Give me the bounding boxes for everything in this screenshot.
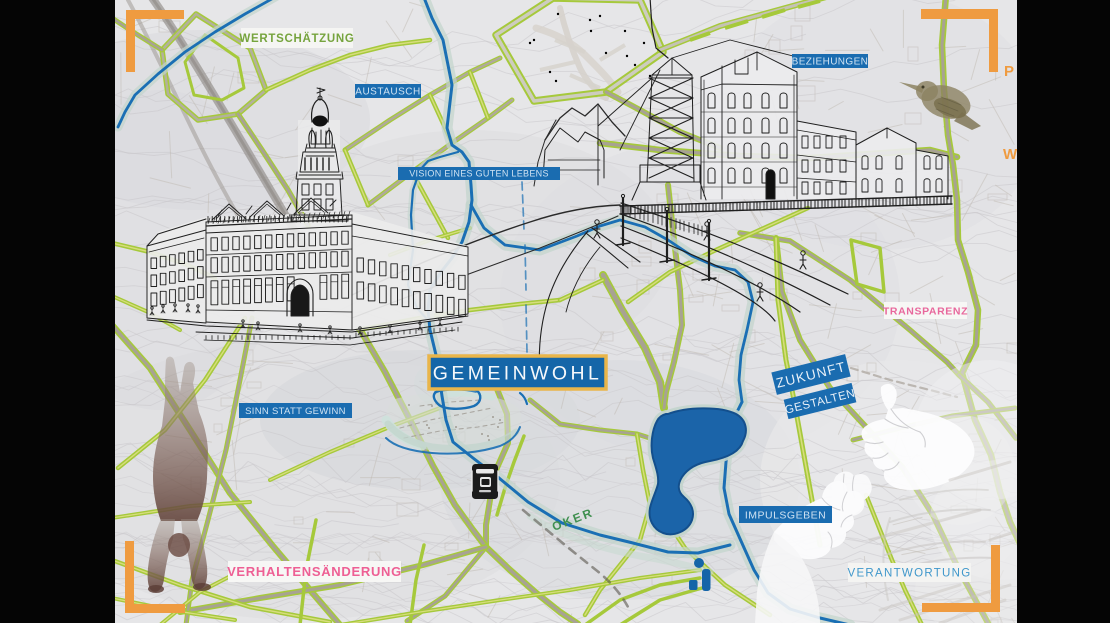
- svg-text:SINN STATT GEWINN: SINN STATT GEWINN: [245, 406, 346, 417]
- svg-text:GEMEINWOHL: GEMEINWOHL: [433, 363, 602, 385]
- svg-text:VERHALTENSÄNDERUNG: VERHALTENSÄNDERUNG: [227, 564, 402, 579]
- svg-text:IMPULSGEBEN: IMPULSGEBEN: [745, 509, 826, 521]
- svg-text:WERTSCHÄTZUNG: WERTSCHÄTZUNG: [239, 32, 354, 45]
- svg-text:W: W: [1003, 146, 1018, 163]
- svg-text:VISION EINES GUTEN LEBENS: VISION EINES GUTEN LEBENS: [409, 169, 549, 179]
- svg-text:TRANSPARENZ: TRANSPARENZ: [883, 305, 968, 317]
- svg-text:P: P: [1004, 63, 1014, 80]
- svg-text:AUSTAUSCH: AUSTAUSCH: [355, 87, 420, 98]
- svg-text:BEZIEHUNGEN: BEZIEHUNGEN: [792, 57, 869, 68]
- svg-text:VERANTWORTUNG: VERANTWORTUNG: [847, 568, 971, 580]
